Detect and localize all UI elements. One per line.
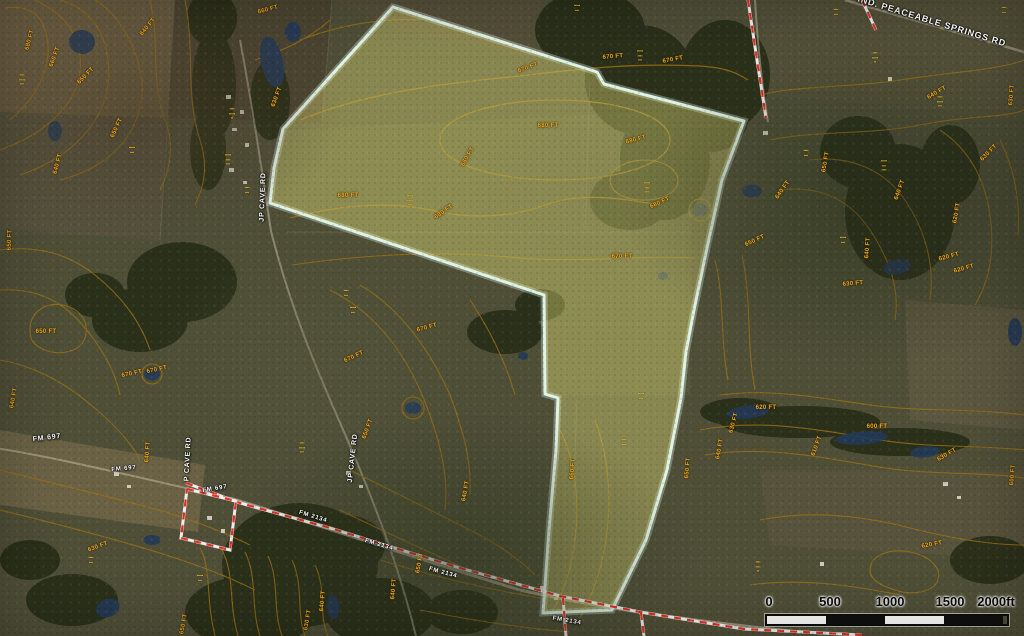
pond-or-creek xyxy=(144,535,161,545)
scale-bar-segment xyxy=(944,616,1003,624)
scale-tick-0: 0 xyxy=(765,594,772,609)
pond-or-creek xyxy=(48,121,62,141)
scale-tick-2000ft: 2000ft xyxy=(977,594,1015,609)
pond-or-creek xyxy=(285,22,301,42)
pond-or-creek xyxy=(742,185,762,198)
pond-or-creek xyxy=(518,352,528,360)
pond-or-creek xyxy=(405,402,421,414)
scale-bar-segments xyxy=(765,614,1009,626)
scale-bar-segment xyxy=(885,616,944,624)
map-canvas xyxy=(0,0,1024,636)
scale-bar: 0 500 1000 1500 2000ft xyxy=(758,594,1020,634)
scale-bar-labels: 0 500 1000 1500 2000ft xyxy=(758,594,1020,611)
pond-or-creek xyxy=(144,368,160,381)
scale-bar-segment xyxy=(767,616,826,624)
scale-tick-500: 500 xyxy=(819,594,841,609)
scale-tick-1000: 1000 xyxy=(876,594,905,609)
pond-or-creek xyxy=(1008,318,1022,346)
scale-tick-1500: 1500 xyxy=(936,594,965,609)
scale-bar-segment xyxy=(826,616,885,624)
aerial-parcel-map[interactable]: 680 FT660 FT650 FT640 FT660 FT630 FT650 … xyxy=(0,0,1024,636)
